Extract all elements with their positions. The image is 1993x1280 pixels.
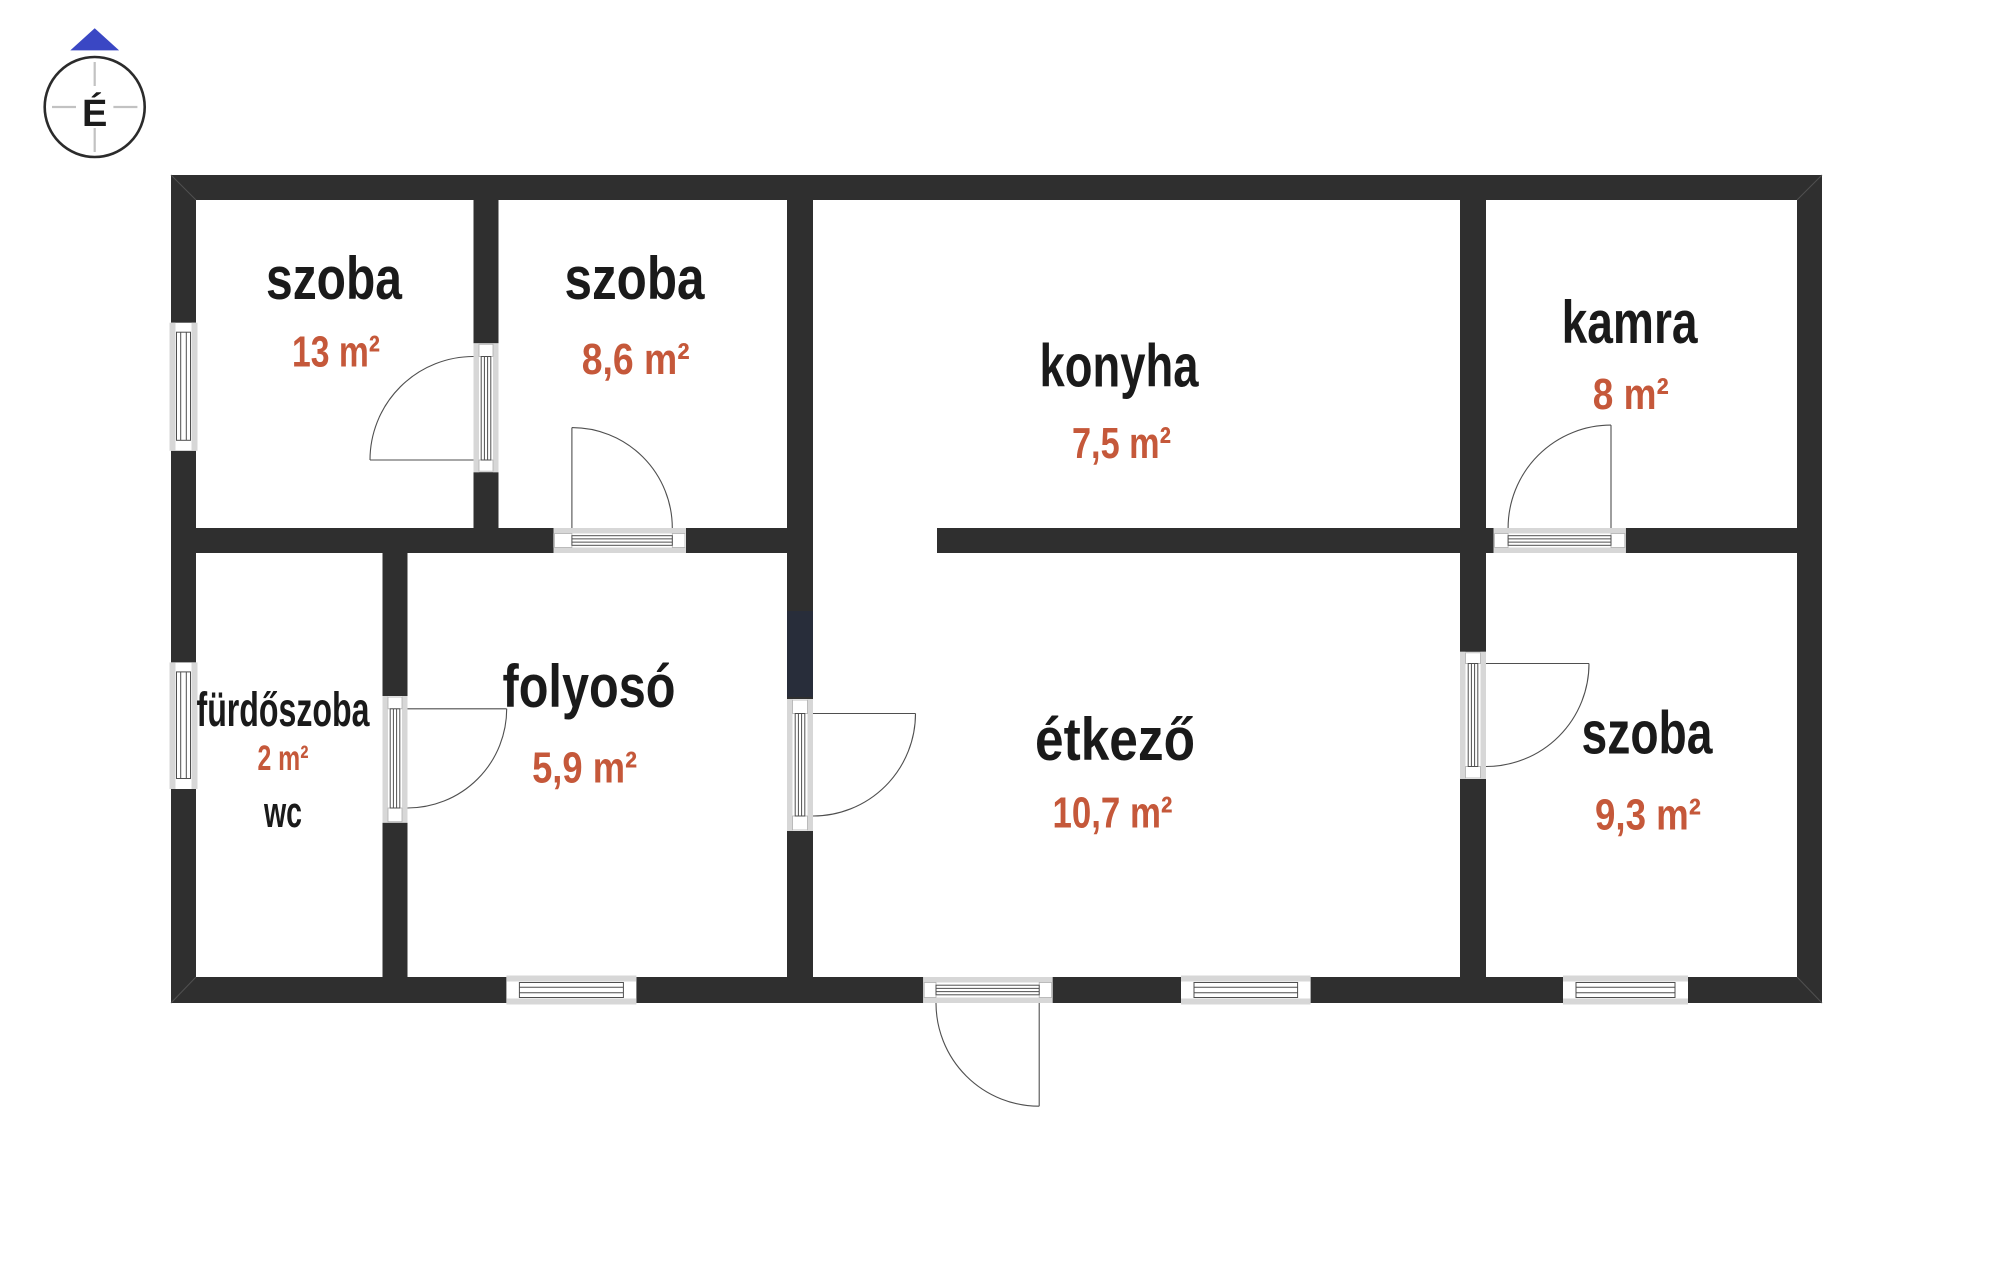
svg-text:konyha: konyha — [1040, 333, 1199, 400]
svg-text:9,3 m²: 9,3 m² — [1595, 791, 1701, 840]
svg-text:szoba: szoba — [1582, 699, 1713, 766]
svg-text:szoba: szoba — [266, 245, 402, 312]
svg-text:10,7 m²: 10,7 m² — [1053, 789, 1173, 838]
svg-text:5,9 m²: 5,9 m² — [532, 744, 637, 793]
svg-text:kamra: kamra — [1562, 289, 1698, 356]
svg-text:étkező: étkező — [1035, 706, 1195, 773]
svg-text:8,6 m²: 8,6 m² — [582, 335, 690, 384]
svg-text:8 m²: 8 m² — [1593, 370, 1669, 419]
svg-text:szoba: szoba — [565, 245, 706, 312]
svg-text:É: É — [82, 91, 107, 135]
svg-text:13 m²: 13 m² — [292, 328, 380, 377]
svg-text:wc: wc — [263, 788, 302, 837]
svg-text:7,5 m²: 7,5 m² — [1072, 419, 1171, 468]
svg-text:fürdőszoba: fürdőszoba — [197, 684, 370, 737]
svg-text:2 m²: 2 m² — [258, 739, 309, 778]
svg-text:folyosó: folyosó — [503, 653, 676, 720]
